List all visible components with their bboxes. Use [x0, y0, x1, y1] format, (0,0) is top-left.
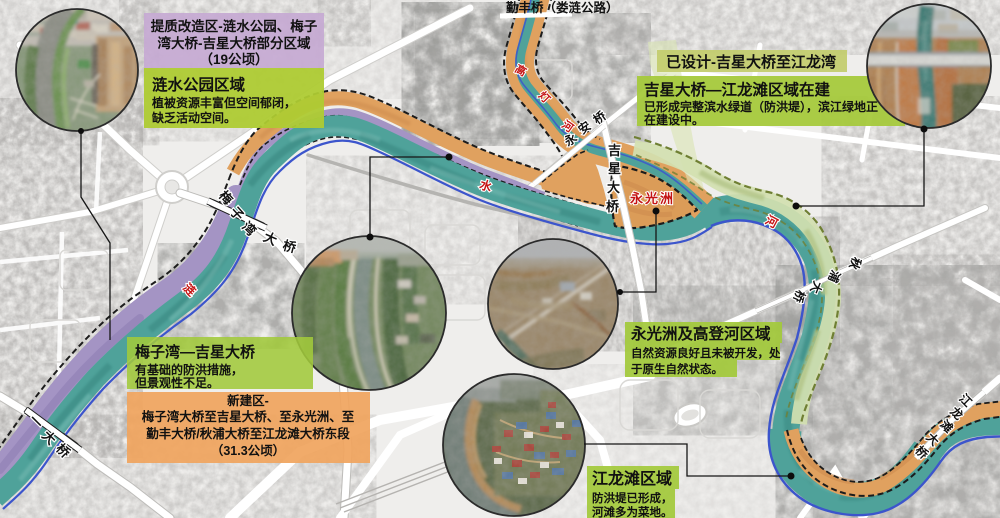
- svg-text:有基础的防洪措施，: 有基础的防洪措施，: [135, 362, 243, 377]
- svg-text:梅子湾—吉星大桥: 梅子湾—吉星大桥: [135, 343, 256, 361]
- svg-text:但景观性不足。: 但景观性不足。: [134, 375, 219, 390]
- svg-text:江龙滩区域: 江龙滩区域: [592, 469, 672, 488]
- svg-text:防洪堤已形成，: 防洪堤已形成，: [592, 491, 673, 505]
- svg-text:缺乏活动空间。: 缺乏活动空间。: [152, 110, 236, 125]
- svg-text:永光洲: 永光洲: [629, 191, 675, 206]
- svg-text:桥: 桥: [606, 199, 620, 214]
- svg-text:（31.3公顷）: （31.3公顷）: [211, 443, 285, 458]
- svg-text:勤丰大桥/秋浦大桥至江龙滩大桥东段: 勤丰大桥/秋浦大桥至江龙滩大桥东段: [146, 426, 350, 441]
- svg-text:提质改造区-涟水公园、梅子: 提质改造区-涟水公园、梅子: [151, 18, 318, 34]
- svg-text:自然资源良好且未被开发，处: 自然资源良好且未被开发，处: [631, 346, 781, 360]
- svg-text:（19公顷）: （19公顷）: [199, 52, 268, 67]
- svg-text:大: 大: [607, 180, 620, 195]
- svg-text:湾大桥-吉星大桥部分区域: 湾大桥-吉星大桥部分区域: [158, 35, 311, 51]
- svg-text:梅子湾大桥至吉星大桥、至永光洲、至: 梅子湾大桥至吉星大桥、至永光洲、至: [142, 409, 355, 424]
- svg-text:在建设中。: 在建设中。: [644, 112, 704, 127]
- svg-text:星: 星: [608, 161, 621, 176]
- svg-text:新建区-: 新建区-: [227, 393, 269, 408]
- svg-text:吉星大桥—江龙滩区域在建: 吉星大桥—江龙滩区域在建: [644, 80, 831, 99]
- svg-text:已设计-吉星大桥至江龙湾: 已设计-吉星大桥至江龙湾: [666, 53, 836, 71]
- svg-text:已形成完整滨水绿道（防洪堤），滨江绿地正: 已形成完整滨水绿道（防洪堤），滨江绿地正: [644, 99, 878, 114]
- svg-text:永光洲及高登河区域: 永光洲及高登河区域: [630, 324, 771, 343]
- svg-text:吉: 吉: [608, 143, 621, 158]
- svg-text:于原生自然状态。: 于原生自然状态。: [631, 362, 723, 376]
- svg-text:勤丰桥（娄涟公路）: 勤丰桥（娄涟公路）: [506, 0, 619, 15]
- svg-text:涟水公园区域: 涟水公园区域: [152, 75, 246, 94]
- svg-text:植被资源丰富但空间郁闭，: 植被资源丰富但空间郁闭，: [151, 95, 296, 110]
- svg-text:河滩多为菜地。: 河滩多为菜地。: [592, 505, 673, 518]
